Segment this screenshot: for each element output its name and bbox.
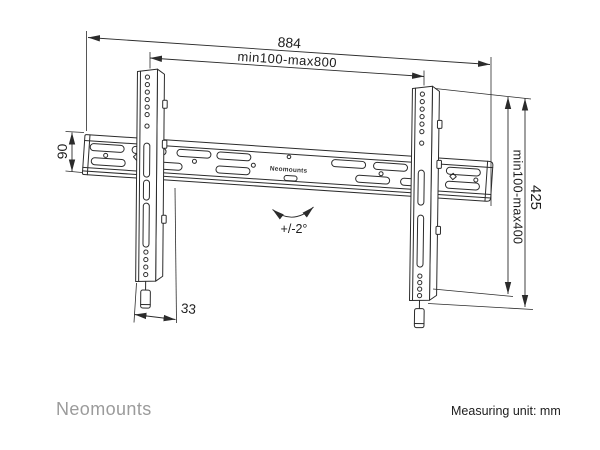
left-vesa-bracket bbox=[135, 69, 167, 308]
flange-hook bbox=[162, 215, 167, 223]
dim-bracket-height-label: 425 bbox=[527, 185, 544, 210]
dimension-line bbox=[135, 315, 176, 320]
dim-rail-height: 90 bbox=[54, 132, 84, 173]
measuring-unit-label: Measuring unit: mm bbox=[451, 404, 561, 418]
dim-total-width-label: 884 bbox=[277, 34, 302, 52]
dim-rail-height-label: 90 bbox=[54, 144, 70, 160]
dim-mount-height-range-label: min100-max400 bbox=[511, 150, 525, 245]
right-spacer bbox=[414, 309, 424, 328]
extension-line bbox=[433, 289, 513, 297]
flange-hook bbox=[162, 140, 167, 148]
extension-line bbox=[428, 304, 533, 310]
extension-line bbox=[175, 188, 177, 323]
extension-line bbox=[66, 132, 85, 133]
extension-line bbox=[435, 89, 531, 100]
left-spacer bbox=[141, 290, 151, 308]
dim-bracket-depth-label: 33 bbox=[180, 301, 197, 317]
product-dimension-sheet: Neomounts bbox=[0, 0, 600, 450]
dim-mount-width-range: min100-max800 bbox=[150, 49, 424, 86]
tilt-indicator: +/-2° bbox=[273, 207, 314, 236]
tilt-label: +/-2° bbox=[281, 222, 308, 236]
right-vesa-bracket bbox=[409, 86, 442, 328]
extension-line bbox=[66, 171, 83, 173]
extension-line bbox=[134, 283, 137, 323]
dim-bracket-height: 425 bbox=[428, 99, 544, 310]
flange-hook bbox=[437, 120, 442, 128]
mount-technical-drawing: Neomounts bbox=[0, 0, 600, 450]
tilt-arc bbox=[273, 207, 314, 217]
flange-hook bbox=[437, 160, 442, 168]
flange-hook bbox=[163, 100, 168, 108]
brand-logo: Neomounts bbox=[56, 399, 152, 420]
flange-hook bbox=[436, 226, 441, 234]
